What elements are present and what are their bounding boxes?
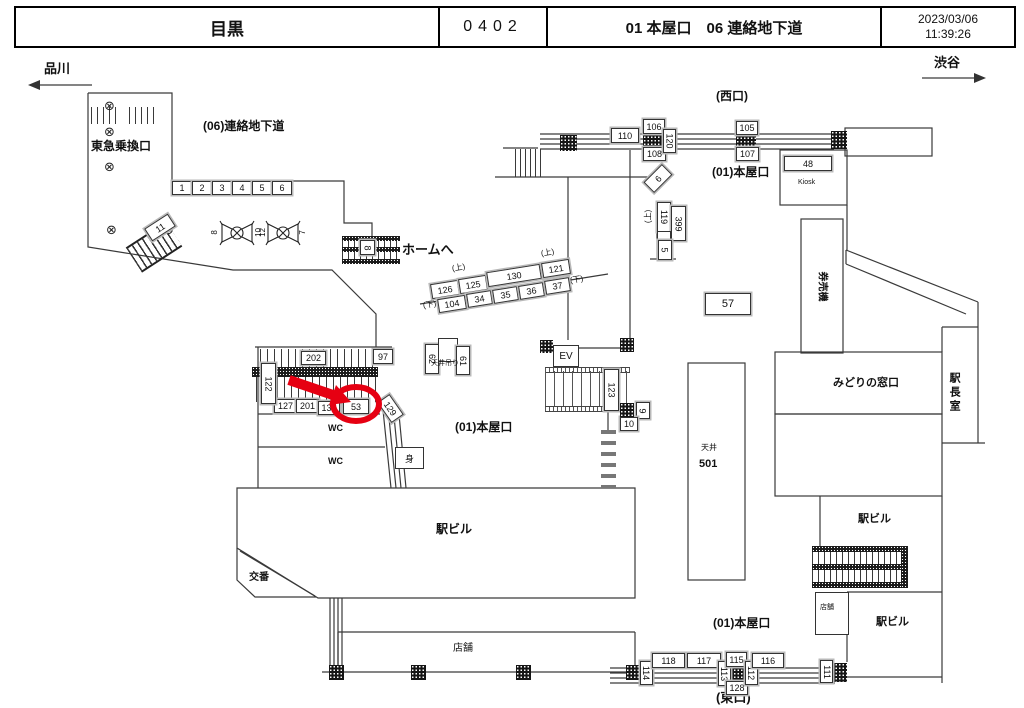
station-map-page: 目黒 0402 01 本屋口 06 連絡地下道 2023/03/06 11:39… — [0, 0, 1024, 708]
highlight-overlay — [0, 0, 1024, 708]
highlight-arrow-shaft — [289, 380, 333, 395]
highlight-circle — [333, 387, 379, 421]
